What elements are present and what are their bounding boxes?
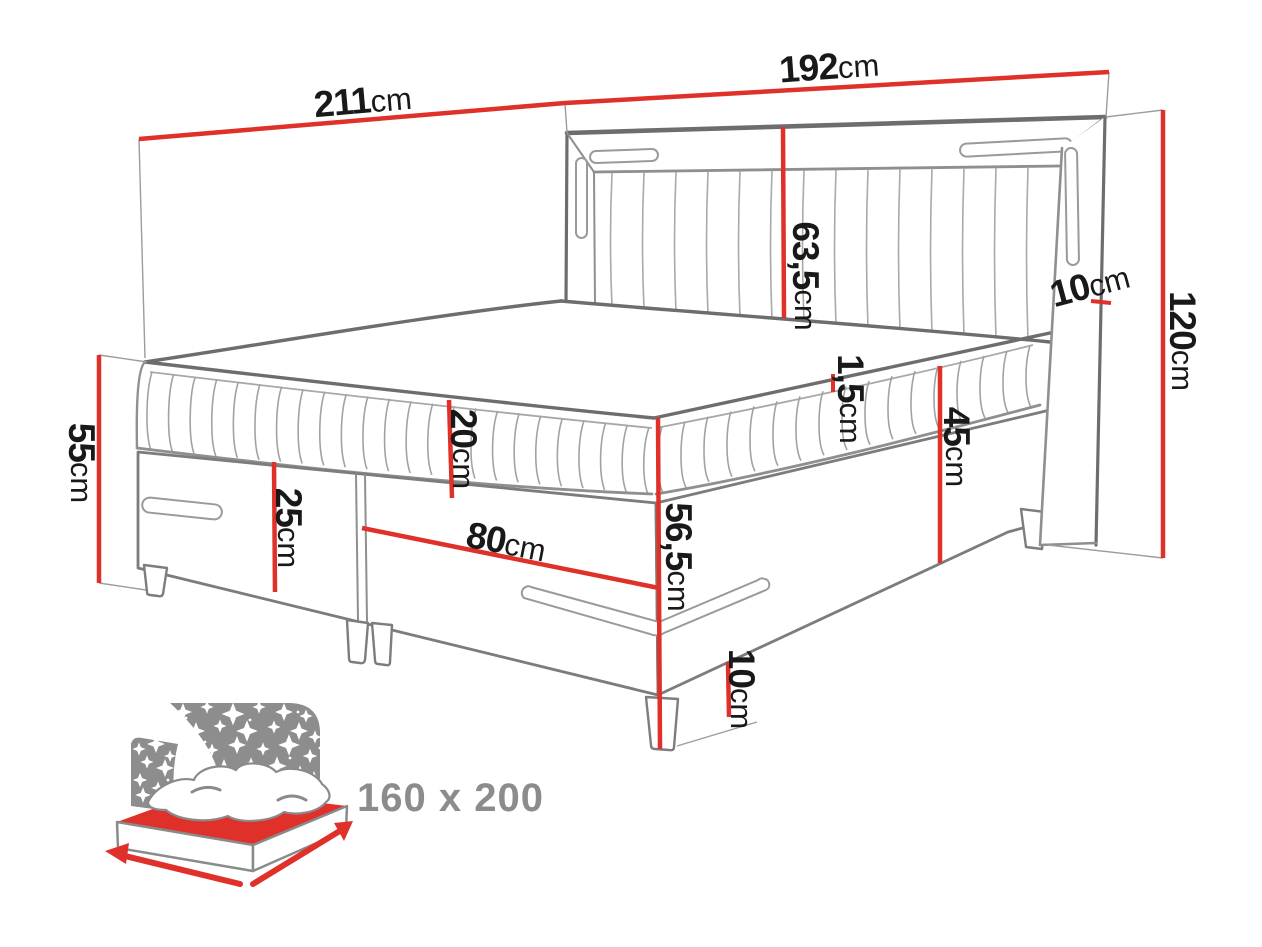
leg-middle-2 <box>372 623 392 665</box>
headboard-led-slot-right <box>960 138 1073 157</box>
extension-height-bottom <box>1048 545 1163 558</box>
dimension-label-base-height: 25cm <box>269 488 310 568</box>
headboard-side-slot-left <box>576 158 587 238</box>
dimension-label-foot-height: 55cm <box>62 423 103 503</box>
mattress-top-surface <box>145 301 1050 418</box>
mattress-corner-left <box>137 362 145 448</box>
dimension-label-width: 192cm <box>778 43 881 91</box>
dimension-label-mattress-thickness: 20cm <box>444 409 485 489</box>
dimension-label-corner-height: 56,5cm <box>659 502 700 611</box>
dimension-label-leg-height: 10cm <box>722 649 763 729</box>
bed-dimension-diagram-page: 211cm 192cm 63,5cm 10cm 120cm 1,5cm 45cm… <box>0 0 1262 947</box>
dimension-label-headboard-panel: 63,5cm <box>786 221 827 330</box>
bed-dimension-diagram: 211cm 192cm 63,5cm 10cm 120cm 1,5cm 45cm… <box>0 0 1262 947</box>
extension-length-left <box>139 139 145 358</box>
headboard-left-edge <box>566 133 567 303</box>
dimension-label-headboard-height: 120cm <box>1163 291 1204 391</box>
dimension-label-mattress-lip: 1,5cm <box>831 354 872 444</box>
dimension-label-side-height: 45cm <box>937 407 978 487</box>
wing-led-slot <box>1065 148 1079 265</box>
headboard-rail-bottom-edge <box>594 166 1060 172</box>
headboard-panel-left-edge <box>594 172 595 305</box>
extension-width-right <box>1106 72 1109 117</box>
leg-middle-1 <box>347 620 368 663</box>
dimension-line-headboard-panel-63-5 <box>783 127 784 318</box>
headboard-wing <box>1040 117 1105 545</box>
dimension-line-corner-height-56-5 <box>658 418 660 749</box>
headboard-led-slot-left <box>590 149 658 163</box>
extension-foot-bottom <box>99 583 146 590</box>
size-badge-icon: 160 x 200 <box>105 700 544 884</box>
size-badge-label: 160 x 200 <box>357 776 544 820</box>
extension-length-right <box>565 103 567 133</box>
extension-foot-top <box>99 355 147 362</box>
icon-duvet <box>148 763 329 821</box>
extension-height-top <box>1106 110 1163 117</box>
leg-front-left <box>144 565 167 596</box>
headboard-top-edge <box>567 117 1105 133</box>
